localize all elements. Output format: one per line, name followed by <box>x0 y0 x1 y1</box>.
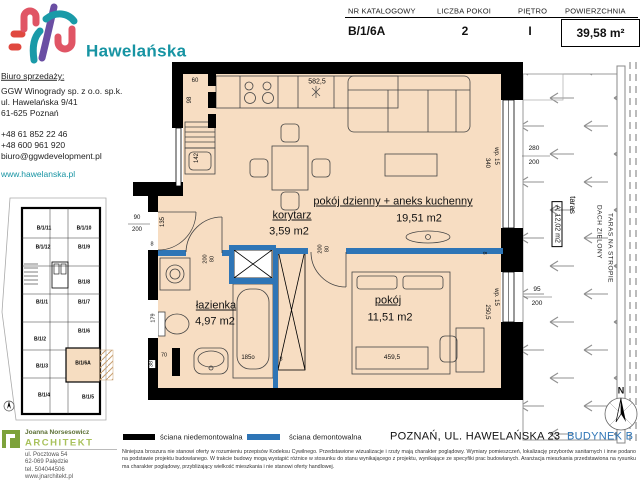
terrace-area: A: 12,02 m2 <box>552 201 563 247</box>
room-bath-name: łazienka <box>196 301 236 312</box>
minimap-unit-label: B/1/9 <box>78 246 90 251</box>
minimap-unit-label: B/1/7 <box>78 301 90 306</box>
compass-north-label: N <box>618 387 625 396</box>
dim-bath-door-w: 80 <box>210 256 216 262</box>
room-bath-area: 4,97 m2 <box>195 317 235 328</box>
dim-unit-h: 142 <box>194 153 200 163</box>
header-area-value: 39,58 m² <box>576 26 624 40</box>
minimap-unit-label: B/1/1 <box>36 301 48 306</box>
sales-office-phone-1: +48 61 852 22 46 <box>1 130 67 139</box>
sales-office-company: GGW Winogrady sp. z o.o. sp.k. <box>1 87 122 96</box>
legend-fixed-wall-swatch <box>123 434 155 440</box>
header-catalog-value: B/1/6A <box>348 25 385 37</box>
header-rooms-value: 2 <box>462 25 469 37</box>
dim-bed-window-sill: wp. 15 <box>493 288 499 306</box>
dim-bath-door-h: 200 <box>203 254 209 263</box>
minimap-unit-label: B/1/3 <box>36 365 48 370</box>
architect-divider <box>25 449 117 450</box>
minimap-unit-label: B/1/2 <box>34 338 46 343</box>
header-catalog-label: NR KATALOGOWY <box>348 7 416 15</box>
minimap-unit-label: B/1/6 <box>78 330 90 335</box>
dim-toilet-d: 38 <box>149 360 155 368</box>
dim-living-window-sill: wp. 15 <box>493 147 499 165</box>
dim-terrace-bed-b: 200 <box>532 301 543 308</box>
dim-shaft-w: 60 <box>192 78 199 84</box>
building-label: BUDYNEK B <box>567 432 633 443</box>
dim-wall-c: 8 <box>480 251 486 254</box>
room-bedroom-name: pokój <box>375 296 401 307</box>
room-living-area: 19,51 m2 <box>396 214 442 225</box>
brand-name: Hawelańska <box>86 43 186 60</box>
dim-hall-h: 135 <box>160 217 166 227</box>
minimap-unit-label: B/1/8 <box>78 281 90 286</box>
header-divider <box>345 17 638 18</box>
compass-icon <box>605 398 637 430</box>
minimap-unit-label: B/1/10 <box>77 227 92 232</box>
minimap-unit-label-highlighted: B/1/6A <box>75 362 91 367</box>
sales-office-email[interactable]: biuro@ggwdevelopment.pl <box>1 152 102 161</box>
architect-title: ARCHITEKT <box>25 438 93 448</box>
minimap-graphic <box>2 198 113 420</box>
dim-kitchen-run: 582,5 <box>308 79 326 86</box>
dim-toilet-h: 179 <box>151 312 157 323</box>
sales-office-website-link[interactable]: www.hawelanska.pl <box>1 170 75 179</box>
floor-plan-graphics <box>0 0 640 480</box>
legend-fixed-wall-label: ściana niedemontowalna <box>160 433 243 441</box>
dim-terrace-living-b: 200 <box>529 160 540 167</box>
architect-city: 62-069 Palędzie <box>25 459 68 465</box>
header-rooms-label: LICZBA POKOI <box>437 7 491 15</box>
dim-living-window-w: 340 <box>484 158 490 168</box>
architect-street: ul. Pocztowa 54 <box>25 452 67 458</box>
architect-website-link[interactable]: www.jnarchitekt.pl <box>25 474 73 480</box>
sales-office-heading: Biuro sprzedaży: <box>1 72 64 81</box>
room-bedroom-area: 11,51 m2 <box>367 313 412 324</box>
sales-office-phone-2: +48 600 961 920 <box>1 141 65 150</box>
dim-bed-length: 459,5 <box>384 355 400 362</box>
project-address: POZNAŃ, UL. HAWELAŃSKA 23 <box>390 432 560 443</box>
minimap-unit-label: B/1/11 <box>37 227 51 232</box>
room-hall-name: korytarz <box>272 211 311 222</box>
minimap-unit-label: B/1/12 <box>36 246 51 251</box>
architect-logo-icon <box>2 430 24 452</box>
dim-wall-a: 8 <box>150 242 153 248</box>
green-roof-hatch <box>630 62 636 444</box>
legal-disclaimer: Niniejsza broszura nie stanowi oferty w … <box>122 449 636 471</box>
brochure-page: Hawelańska NR KATALOGOWY LICZBA POKOI PI… <box>0 0 640 480</box>
dim-entry-w: 90 <box>134 215 141 221</box>
sales-office-city: 61-625 Poznań <box>1 109 59 118</box>
architect-phone: tel. 504044506 <box>25 467 65 473</box>
terrace-note-2: DACH ZIELONY <box>595 205 602 259</box>
dim-terrace-bed-a: 95 <box>533 287 540 294</box>
minimap-unit-label: B/1/5 <box>82 396 94 401</box>
header-floor-value: I <box>528 25 531 37</box>
architect-name: Joanna Norsesowicz <box>25 430 89 437</box>
sales-office-street: ul. Hawelańska 9/41 <box>1 98 78 107</box>
dim-bed-window-w: 250,5 <box>484 304 490 319</box>
dim-entry-h: 200 <box>132 227 142 233</box>
terrace-name: taras <box>568 196 576 214</box>
room-living-name: pokój dzienny + aneks kuchenny <box>313 197 472 208</box>
dim-bed-door-w: 80 <box>325 246 331 252</box>
header-area-box: 39,58 m² <box>561 19 640 47</box>
dim-shaft-h: 98 <box>187 97 193 104</box>
minimap-unit-label: B/1/4 <box>38 394 50 399</box>
legend-removable-wall-label: ściana demontowalna <box>289 433 362 441</box>
dim-terrace-living-a: 280 <box>529 146 540 153</box>
terrace-note-1: TARAS NA STROPIE <box>606 213 613 283</box>
header-floor-label: PIĘTRO <box>518 7 547 15</box>
legend-removable-wall-swatch <box>247 434 280 440</box>
dim-bed-door-h: 200 <box>318 244 324 253</box>
dim-bathtub: 185o <box>241 355 254 361</box>
header-area-label: POWIERZCHNIA <box>565 7 626 15</box>
brand-logo-icon <box>12 7 74 60</box>
dim-toilet-w: 70 <box>161 353 167 359</box>
room-hall-area: 3,59 m2 <box>269 227 309 238</box>
dim-wall-b: 8 <box>279 357 282 363</box>
